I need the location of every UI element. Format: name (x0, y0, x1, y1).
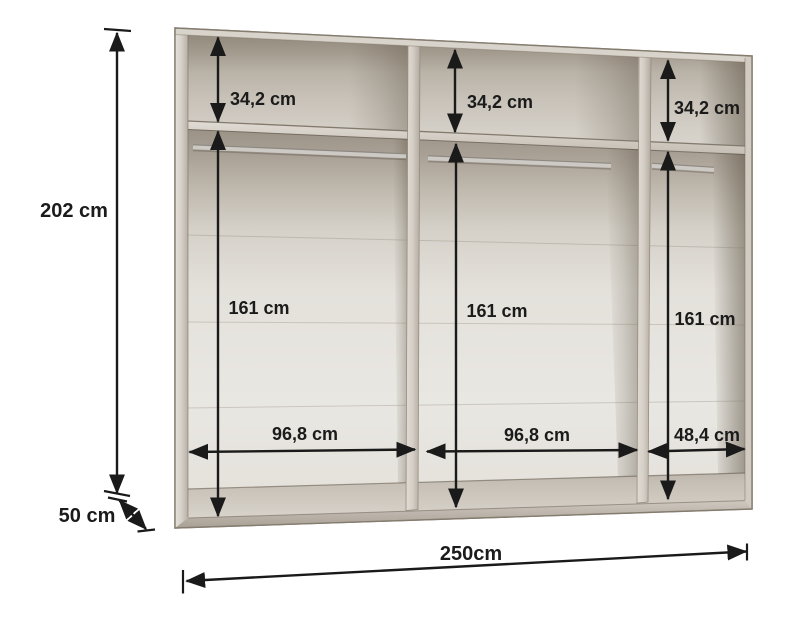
section-width-dimension-middle (427, 450, 637, 452)
label-hanging-height-middle: 161 cm (466, 301, 527, 321)
label-section-width-right: 48,4 cm (674, 425, 740, 445)
label-hanging-height-right: 161 cm (674, 309, 735, 329)
label-shelf-height-middle: 34,2 cm (467, 92, 533, 112)
label-overall-height: 202 cm (40, 200, 108, 222)
label-overall-width: 250cm (440, 543, 502, 565)
overall-height-dimension (104, 29, 131, 496)
upper-shade-middle-section (575, 53, 638, 141)
wardrobe-dimension-diagram: 202 cm 50 cm 250cm 34,2 cm 34,2 cm 34,2 … (0, 0, 788, 619)
label-shelf-height-right: 34,2 cm (674, 98, 740, 118)
label-section-width-middle: 96,8 cm (504, 425, 570, 445)
divider-left (406, 45, 420, 510)
label-section-width-left: 96,8 cm (272, 424, 338, 444)
diagram-canvas: 202 cm 50 cm 250cm 34,2 cm 34,2 cm 34,2 … (0, 0, 788, 619)
label-hanging-height-left: 161 cm (228, 298, 289, 318)
cabinet-left-panel (175, 28, 188, 528)
label-overall-depth: 50 cm (59, 505, 116, 527)
upper-shade-left-section (350, 43, 408, 132)
cabinet-right-panel (745, 56, 752, 510)
label-shelf-height-left: 34,2 cm (230, 89, 296, 109)
